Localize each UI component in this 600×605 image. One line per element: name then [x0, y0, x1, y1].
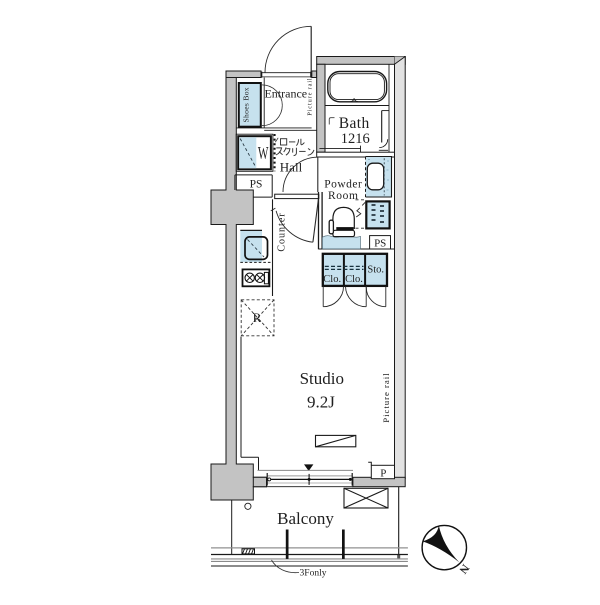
svg-text:P: P — [380, 468, 386, 480]
svg-text:1216: 1216 — [341, 131, 370, 147]
svg-text:Room: Room — [328, 190, 359, 202]
svg-text:3Fonly: 3Fonly — [300, 568, 327, 578]
svg-text:Clo.: Clo. — [345, 274, 363, 285]
svg-text:Picture rail: Picture rail — [307, 77, 314, 115]
svg-text:Picture rail: Picture rail — [381, 372, 391, 422]
svg-text:PS: PS — [250, 179, 263, 191]
svg-text:Hall: Hall — [280, 160, 303, 175]
svg-text:W: W — [258, 145, 269, 164]
svg-text:Counter: Counter — [277, 212, 288, 251]
svg-text:Balcony: Balcony — [277, 509, 334, 528]
svg-text:9.2J: 9.2J — [307, 393, 335, 412]
svg-text:Studio: Studio — [300, 369, 344, 388]
svg-text:Bath: Bath — [339, 115, 370, 132]
svg-text:Shoes Box: Shoes Box — [241, 87, 250, 122]
svg-text:Powder: Powder — [324, 179, 362, 191]
svg-text:R: R — [253, 310, 262, 325]
svg-text:Entrance: Entrance — [264, 87, 307, 101]
svg-text:PS: PS — [374, 238, 386, 250]
svg-text:Sto.: Sto. — [367, 265, 384, 276]
svg-text:Clo.: Clo. — [323, 274, 341, 285]
